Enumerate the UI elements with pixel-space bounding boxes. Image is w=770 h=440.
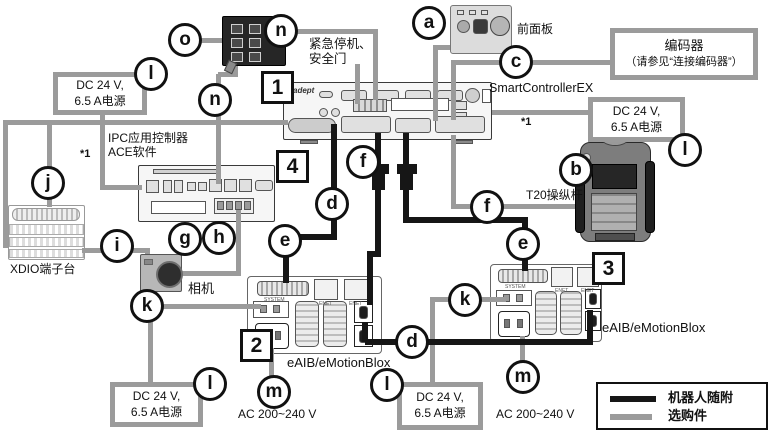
port-label-enet: ENET	[349, 302, 362, 307]
callout-j: j	[31, 166, 65, 200]
wire-ipc-power-v	[100, 120, 105, 190]
wire-k1-h	[161, 304, 261, 309]
dc24-power-box-bottomleft: DC 24 V, 6.5 A电源	[110, 382, 203, 427]
ac-inlet	[498, 311, 530, 337]
callout-o: o	[168, 23, 202, 57]
top-vent	[153, 169, 217, 174]
xdio-teeth	[9, 224, 84, 235]
eaib-left-label: eAIB/eMotionBlox	[287, 355, 390, 370]
legend-optional-label: 选购件	[668, 408, 707, 423]
callout-e-left: e	[268, 224, 302, 258]
poe-port	[226, 201, 233, 210]
callout-i: i	[100, 229, 134, 263]
camera-label-dot	[144, 259, 153, 265]
wire-controller-to-dc24-right	[492, 110, 588, 115]
ac-pin	[275, 331, 281, 340]
callout-g: g	[168, 222, 202, 256]
callout-a: a	[412, 6, 446, 40]
cable-daisychain-stub-right	[587, 310, 593, 342]
callout-l-bottommid: l	[370, 368, 404, 402]
callout-k-right: k	[448, 283, 482, 317]
callout-l-bottomleft: l	[193, 367, 227, 401]
ac-right-label: AC 200~240 V	[496, 407, 574, 421]
ethernet-port	[239, 179, 252, 192]
xdio-teeth	[9, 237, 84, 247]
emergency-line1: 紧急停机、	[309, 37, 372, 51]
system-connector	[257, 281, 309, 296]
system-connector	[498, 269, 548, 283]
connector	[174, 180, 183, 193]
switch-port	[249, 38, 261, 48]
smartservo-port-inner	[589, 293, 597, 305]
round-connector	[331, 108, 340, 117]
round-connector	[319, 108, 328, 117]
port-label-enet: ENET	[319, 302, 332, 307]
controller-foot	[455, 140, 473, 144]
smartservo-port-inner	[359, 306, 368, 319]
smartcontroller-label: SmartControllerEX	[489, 81, 593, 96]
big-knob	[490, 16, 510, 36]
port-label-enet: ENET	[555, 289, 568, 294]
db-connector-vertical	[535, 291, 557, 335]
wire-left-bus-h	[3, 120, 288, 125]
dc24-power-box-topleft: DC 24 V, 6.5 A电源	[53, 72, 147, 115]
encoder-line2: （请参见“连接编码器”）	[625, 55, 742, 69]
db15-connector	[395, 118, 431, 133]
eaib-right-label: eAIB/eMotionBlox	[602, 320, 705, 335]
callout-c: c	[499, 45, 533, 79]
db-connector-vertical	[560, 291, 582, 335]
callout-m-right: m	[506, 360, 540, 394]
smartservo-plug2-stem	[400, 172, 413, 190]
ipc-device	[138, 165, 275, 222]
ipc-label: IPC应用控制器 ACE软件	[108, 131, 188, 159]
front-panel-label: 前面板	[517, 22, 553, 36]
footnote-right: *1	[521, 116, 531, 129]
encoder-box: 编码器 （请参见“连接编码器”）	[610, 28, 758, 80]
connector	[163, 180, 172, 193]
indicator	[469, 10, 476, 15]
legend-optional-line	[610, 414, 652, 420]
connector	[146, 180, 159, 193]
wire-t20-v	[451, 135, 456, 209]
dc24-line2: 6.5 A电源	[611, 120, 662, 136]
wire-switch-left	[200, 38, 224, 43]
wire-estop-drop	[355, 64, 360, 104]
enet-port	[551, 267, 573, 287]
xdio-terminal-device	[8, 205, 85, 260]
wire-camera-poe-h	[178, 271, 241, 276]
callout-e-right: e	[506, 227, 540, 261]
wire-ipc-power-h	[100, 185, 142, 190]
port-label-system: SYSTEM	[505, 285, 526, 290]
connection-diagram: adept	[0, 0, 770, 440]
controller-foot	[300, 140, 318, 144]
ac-pin	[504, 319, 510, 328]
cable-smartservo1-drop	[367, 251, 373, 305]
wire-camera-poe-v	[236, 210, 241, 276]
ipc-line2: ACE软件	[108, 145, 157, 159]
eaib-right-device: SYSTEM ENET ENET	[490, 264, 602, 342]
db9-connector	[255, 180, 273, 191]
cable-xsmp-v	[331, 124, 337, 240]
callout-b: b	[559, 153, 593, 187]
t20-label: T20操纵杆	[526, 188, 583, 202]
port-label-system: SYSTEM	[264, 298, 285, 303]
poe-port	[217, 201, 224, 210]
switch-port	[249, 24, 261, 34]
emergency-line2: 安全门	[309, 52, 347, 66]
callout-k-left: k	[130, 289, 164, 323]
callout-d-top: d	[315, 187, 349, 221]
cable-daisychain-stub-left	[362, 322, 368, 342]
poe-port	[244, 201, 251, 210]
dc24-line2: 6.5 A电源	[74, 94, 125, 110]
indicator	[481, 10, 488, 15]
db25-connector	[435, 116, 485, 133]
ipc-line1: IPC应用控制器	[108, 131, 188, 145]
callout-l-topleft: l	[134, 57, 168, 91]
callout-d-bottom: d	[395, 325, 429, 359]
ethernet-port	[224, 179, 237, 192]
ac-pin	[517, 319, 523, 328]
keyswitch	[457, 20, 470, 33]
dc24-pin	[273, 305, 280, 313]
dc24-pin	[260, 305, 267, 313]
front-panel-device	[450, 5, 512, 54]
usb-port	[198, 182, 207, 191]
t20-keypad	[591, 193, 637, 231]
callout-f-right: f	[470, 190, 504, 224]
oval-connector	[288, 118, 336, 133]
t20-grip-right	[645, 161, 655, 233]
wire-switch-to-estop-h	[284, 29, 378, 34]
switch-port	[231, 38, 243, 48]
callout-m-left: m	[257, 375, 291, 409]
dc24-line1: DC 24 V,	[416, 390, 464, 406]
legend: 机器人随附 选购件	[596, 382, 768, 430]
xdio-connector	[12, 208, 80, 221]
callout-f-left: f	[346, 145, 380, 179]
blank-plate	[151, 201, 206, 214]
db25-connector	[341, 116, 391, 133]
camera-device	[140, 254, 182, 292]
dc24-power-box-bottommid: DC 24 V, 6.5 A电源	[397, 382, 483, 430]
estop-button	[473, 19, 488, 34]
wire-left-bus-v	[3, 120, 8, 248]
wire-switch-to-estop-v	[373, 29, 378, 100]
legend-robot-label: 机器人随附	[668, 390, 733, 405]
xdio-label: XDIO端子台	[10, 262, 75, 276]
dc24-line1: DC 24 V,	[613, 104, 661, 120]
dc24-power-box-right: DC 24 V, 6.5 A电源	[588, 97, 685, 142]
encoder-line1: 编码器	[664, 38, 703, 55]
db-connector-vertical	[323, 301, 347, 347]
wire-k1-v	[148, 320, 153, 382]
usb-port	[187, 182, 196, 191]
number-box-3: 3	[592, 252, 625, 285]
enet-port	[314, 279, 338, 300]
camera-label: 相机	[188, 281, 214, 296]
callout-h: h	[202, 221, 236, 255]
poe-port	[235, 201, 242, 210]
wire-encoder-v	[451, 60, 456, 120]
emergency-stop-label: 紧急停机、 安全门	[309, 37, 372, 67]
ac-left-label: AC 200~240 V	[238, 407, 316, 421]
t20-base	[595, 233, 635, 241]
connector	[319, 91, 333, 98]
port-label-enet: ENET	[581, 289, 594, 294]
switch-port	[231, 24, 243, 34]
footnote-left: *1	[80, 148, 90, 161]
blank-plate	[391, 98, 449, 111]
xdio-teeth	[9, 249, 84, 258]
smartcontroller-ex-device: adept	[283, 82, 492, 140]
dc24-line1: DC 24 V,	[76, 78, 124, 94]
dc24-line2: 6.5 A电源	[131, 405, 182, 421]
wire-frontpanel-v	[433, 45, 438, 121]
number-box-4: 4	[276, 150, 309, 183]
dc24-line2: 6.5 A电源	[414, 406, 465, 422]
camera-lens	[156, 261, 183, 288]
t20-pendant-device	[575, 133, 655, 248]
dc24-line1: DC 24 V,	[133, 389, 181, 405]
cable-smartservo2-h	[403, 217, 528, 223]
indicator	[457, 10, 464, 15]
switch-port	[249, 52, 261, 62]
db-connector-vertical	[295, 301, 319, 347]
callout-n-top: n	[264, 14, 298, 48]
enet-port	[344, 279, 368, 300]
legend-robot-line	[610, 396, 656, 402]
callout-n-mid: n	[198, 83, 232, 117]
dc24-pin	[516, 294, 523, 302]
t20-screen	[592, 164, 637, 189]
number-box-1: 1	[261, 71, 294, 104]
adept-logo: adept	[293, 86, 314, 95]
din-connector	[465, 88, 480, 103]
number-box-2: 2	[240, 329, 273, 362]
callout-l-right: l	[668, 133, 702, 167]
